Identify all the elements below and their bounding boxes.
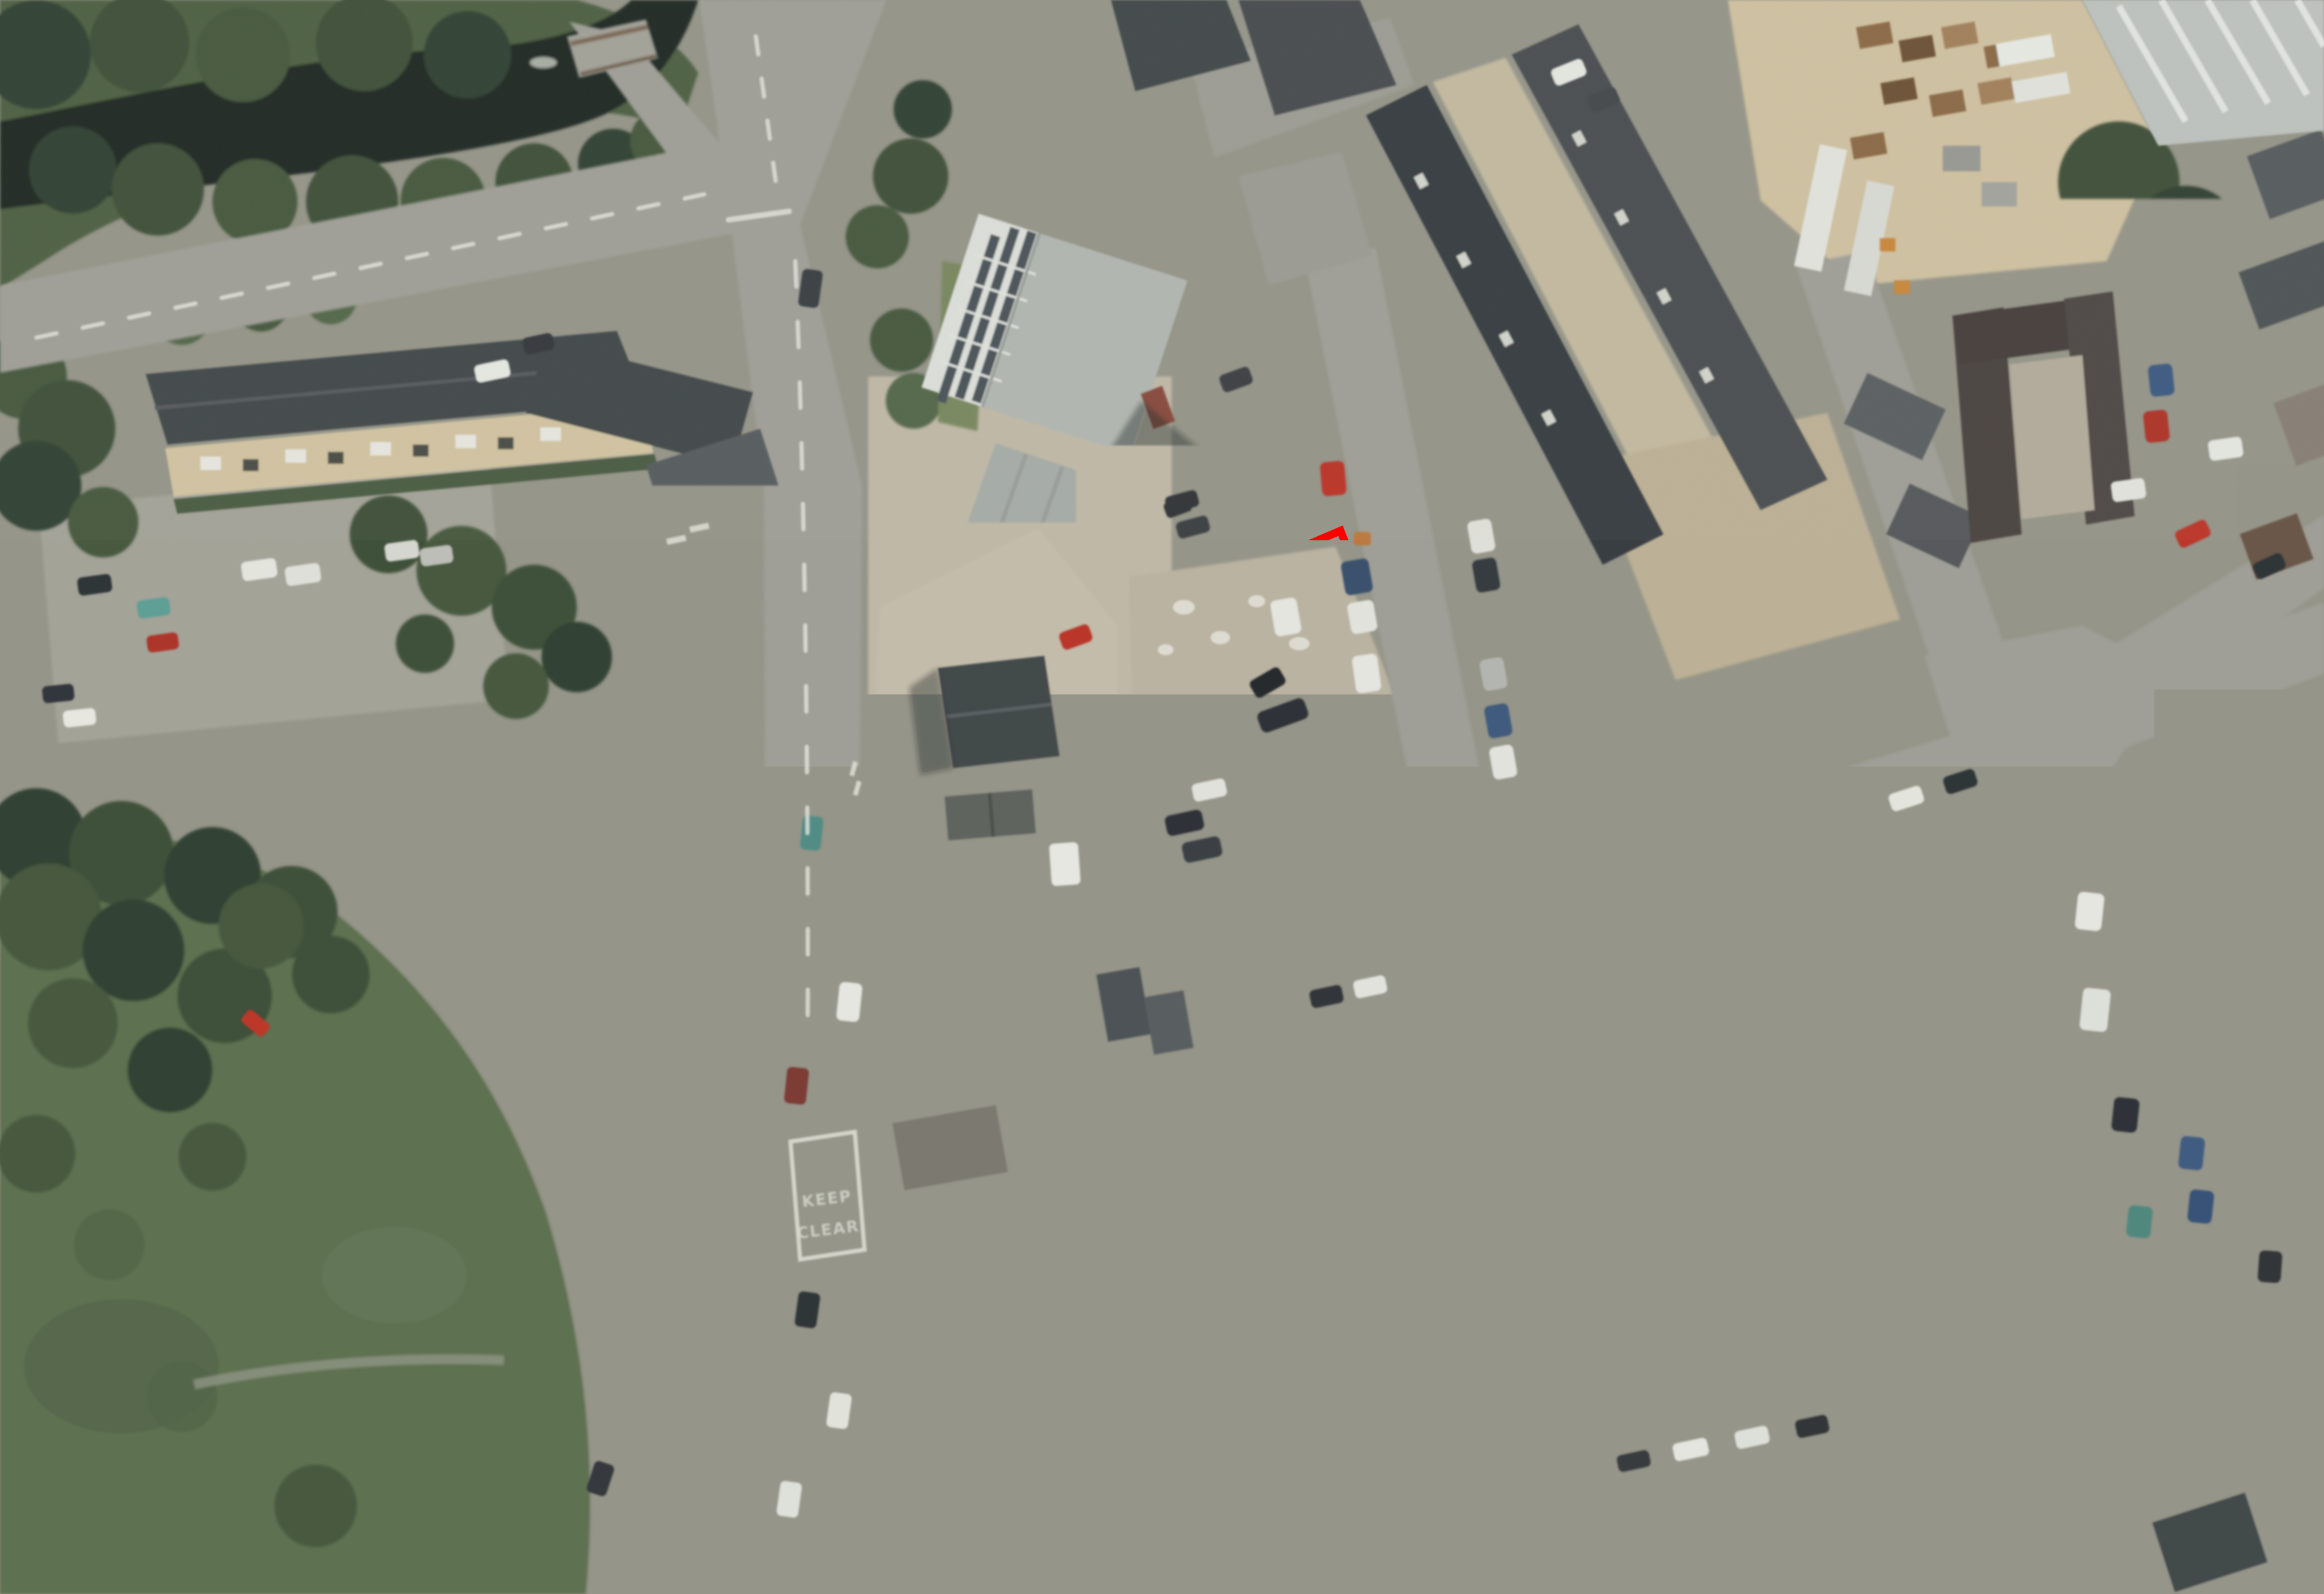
site-location-plan: KEEP CLEAR 0 25 m 50 m © Crown Copyright… <box>0 0 2324 1594</box>
scale-label-0: 0 <box>6 1526 25 1559</box>
copyright-attribution: © Crown Copyright and database rights 20… <box>1225 1544 2284 1578</box>
aerial-basemap: KEEP CLEAR 0 25 m 50 m © Crown Copyright… <box>0 0 2324 1594</box>
scale-bar-segment <box>401 1558 535 1588</box>
photo-grain <box>0 0 2324 1594</box>
scale-label-25: 25 m <box>230 1526 308 1559</box>
scale-label-50: 50 m <box>496 1526 574 1559</box>
scale-bar-segment <box>137 1558 269 1588</box>
